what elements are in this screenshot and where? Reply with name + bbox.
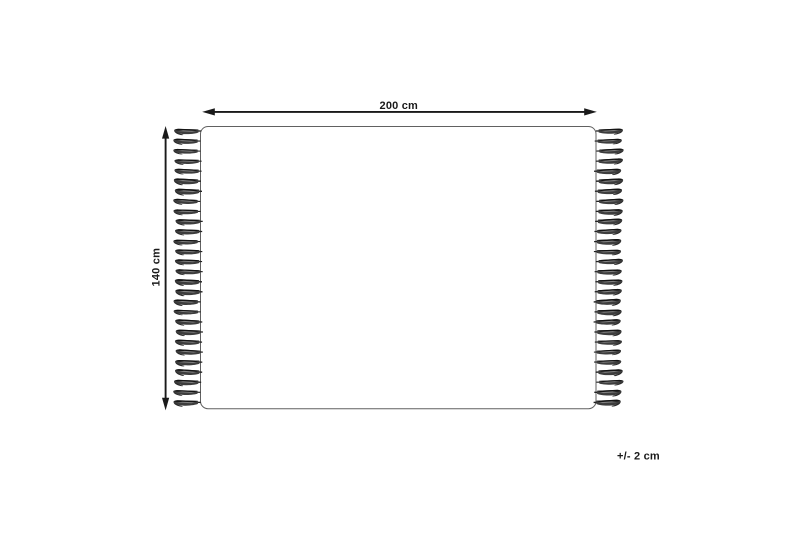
- svg-text:+/- 2 cm: +/- 2 cm: [617, 451, 660, 463]
- svg-text:140 cm: 140 cm: [151, 248, 163, 287]
- svg-text:200 cm: 200 cm: [380, 100, 419, 112]
